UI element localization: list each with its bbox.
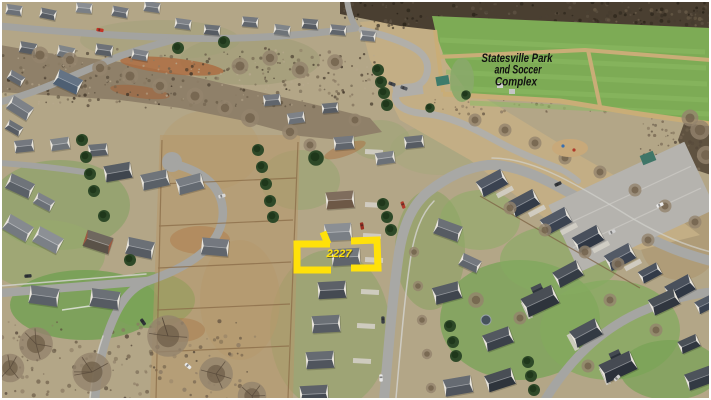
house	[301, 18, 319, 31]
bare-tree	[579, 246, 592, 259]
bare-tree	[147, 315, 189, 357]
car	[381, 316, 385, 323]
house	[318, 281, 348, 301]
house	[5, 4, 23, 18]
house	[360, 30, 377, 43]
bare-tree	[417, 315, 427, 325]
car	[379, 374, 383, 381]
evergreen-tree	[447, 336, 459, 348]
bare-tree	[187, 88, 204, 105]
house	[50, 137, 71, 153]
bare-tree	[217, 100, 233, 116]
evergreen-tree	[252, 144, 264, 156]
evergreen-tree	[461, 90, 471, 100]
bare-tree	[152, 78, 168, 94]
trampoline	[481, 315, 491, 325]
bare-tree	[426, 383, 436, 393]
bare-tree	[19, 327, 53, 361]
evergreen-tree	[80, 151, 92, 163]
house	[89, 288, 121, 311]
bare-tree	[582, 360, 595, 373]
bare-tree	[92, 60, 108, 76]
evergreen-tree	[172, 42, 184, 54]
address-label: 2227	[325, 248, 352, 260]
evergreen-tree	[381, 211, 393, 223]
evergreen-tree	[375, 76, 387, 88]
bare-tree	[73, 353, 112, 392]
evergreen-tree	[385, 224, 397, 236]
bare-tree	[468, 292, 484, 308]
house	[287, 111, 306, 126]
house	[333, 136, 355, 152]
evergreen-tree	[218, 36, 230, 48]
evergreen-tree	[267, 211, 279, 223]
bare-tree	[539, 224, 552, 237]
house	[174, 18, 192, 32]
house	[300, 385, 330, 400]
evergreen-tree	[256, 161, 268, 173]
evergreen-tree	[381, 99, 393, 111]
bare-tree	[612, 258, 625, 271]
house	[404, 135, 425, 150]
evergreen-tree	[525, 370, 537, 382]
bare-tree	[682, 110, 699, 127]
evergreen-tree	[372, 64, 384, 76]
evergreen-tree	[98, 210, 110, 222]
house	[306, 351, 336, 371]
bare-tree	[232, 58, 249, 75]
evergreen-tree	[88, 185, 100, 197]
park-label-line3: Complex	[495, 77, 538, 89]
bare-tree	[413, 281, 423, 291]
evergreen-tree	[124, 254, 136, 266]
evergreen-tree	[377, 198, 389, 210]
highlight-tick	[323, 232, 328, 244]
bare-tree	[199, 357, 233, 391]
evergreen-tree	[425, 103, 435, 113]
playground	[552, 139, 588, 157]
house	[241, 16, 259, 29]
house	[95, 43, 114, 58]
car	[24, 274, 31, 278]
bare-tree	[689, 216, 702, 229]
bare-tree	[32, 47, 49, 64]
bare-tree	[262, 50, 278, 66]
evergreen-tree	[444, 320, 456, 332]
bare-tree	[327, 54, 343, 70]
house	[201, 237, 230, 258]
bare-tree	[650, 324, 663, 337]
bare-tree	[469, 114, 482, 127]
house	[325, 190, 355, 210]
bare-tree	[62, 52, 78, 68]
house	[329, 24, 347, 37]
bare-tree	[504, 202, 517, 215]
bare-tree	[629, 184, 642, 197]
house	[273, 24, 291, 38]
aerial-photo: 2227 2227 Statesville Park and Soccer Co…	[0, 0, 711, 400]
evergreen-tree	[308, 150, 324, 166]
house	[312, 315, 342, 335]
park-label-line2: and Soccer	[495, 65, 542, 77]
bare-tree	[409, 247, 419, 257]
bare-tree	[349, 114, 362, 127]
bare-tree	[282, 124, 298, 140]
bare-tree	[499, 124, 512, 137]
evergreen-tree	[76, 134, 88, 146]
house	[143, 1, 161, 15]
bare-tree	[514, 312, 527, 325]
bare-tree	[122, 68, 139, 85]
evergreen-tree	[378, 87, 390, 99]
house	[375, 151, 396, 167]
house	[263, 94, 282, 108]
evergreen-tree	[528, 384, 540, 396]
bare-tree	[304, 139, 317, 152]
bare-tree	[529, 137, 542, 150]
bare-tree	[292, 62, 309, 79]
evergreen-tree	[522, 356, 534, 368]
bare-tree	[604, 294, 617, 307]
house	[322, 102, 340, 115]
aerial-photo-canvas: 2227 2227 Statesville Park and Soccer Co…	[0, 0, 711, 400]
house	[28, 285, 60, 308]
bare-tree	[241, 109, 259, 127]
bare-tree	[422, 349, 432, 359]
park-label-line1: Statesville Park	[482, 53, 554, 65]
house	[14, 139, 35, 154]
evergreen-tree	[450, 350, 462, 362]
bare-tree	[594, 166, 607, 179]
house	[75, 2, 93, 15]
bare-tree	[642, 234, 655, 247]
evergreen-tree	[260, 178, 272, 190]
house	[203, 24, 221, 37]
evergreen-tree	[264, 195, 276, 207]
evergreen-tree	[84, 168, 96, 180]
